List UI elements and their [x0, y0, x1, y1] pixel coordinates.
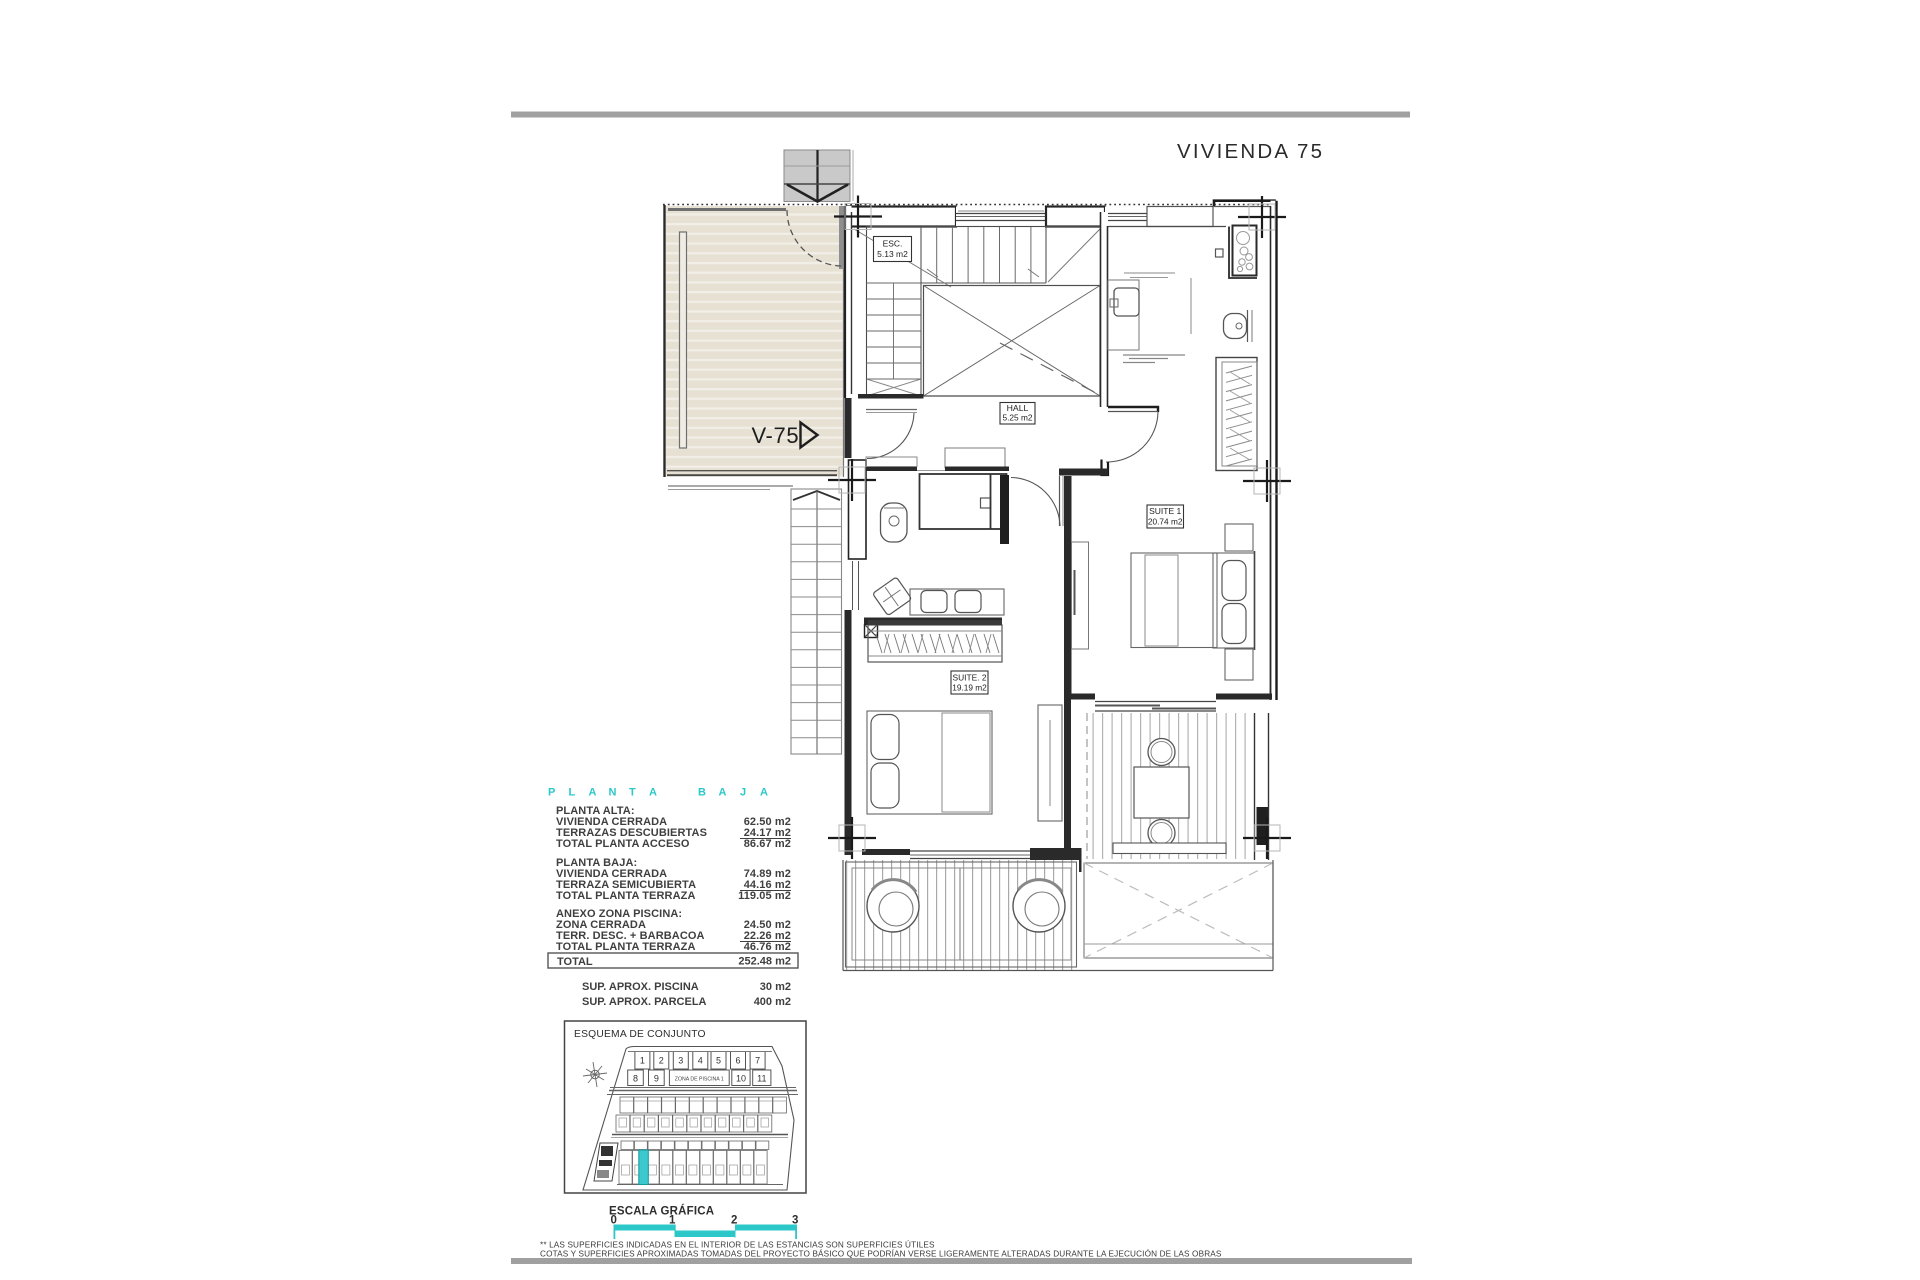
- svg-text:A: A: [589, 787, 597, 799]
- svg-text:TOTAL: TOTAL: [557, 956, 593, 968]
- svg-text:ESQUEMA DE CONJUNTO: ESQUEMA DE CONJUNTO: [574, 1029, 706, 1040]
- svg-text:1: 1: [640, 1056, 645, 1066]
- svg-text:TOTAL PLANTA ACCESO: TOTAL PLANTA ACCESO: [556, 838, 690, 850]
- svg-text:20.74 m2: 20.74 m2: [1148, 517, 1183, 527]
- svg-text:A: A: [760, 787, 768, 799]
- svg-text:SUP. APROX. PISCINA: SUP. APROX. PISCINA: [582, 981, 699, 993]
- svg-text:252.48 m2: 252.48 m2: [738, 956, 791, 968]
- svg-text:L: L: [569, 787, 576, 799]
- svg-text:30 m2: 30 m2: [760, 981, 791, 993]
- svg-text:T: T: [629, 787, 636, 799]
- svg-text:VIVIENDA 75: VIVIENDA 75: [1177, 140, 1324, 163]
- svg-text:P: P: [548, 787, 555, 799]
- svg-text:6: 6: [735, 1056, 740, 1066]
- svg-text:** LAS SUPERFICIES INDICADAS E: ** LAS SUPERFICIES INDICADAS EN EL INTER…: [540, 1240, 935, 1250]
- svg-text:5: 5: [716, 1056, 721, 1066]
- svg-text:TOTAL PLANTA TERRAZA: TOTAL PLANTA TERRAZA: [556, 890, 696, 902]
- svg-text:11: 11: [757, 1074, 766, 1084]
- svg-text:9: 9: [654, 1074, 659, 1084]
- svg-text:400 m2: 400 m2: [754, 996, 791, 1008]
- svg-text:5.13 m2: 5.13 m2: [877, 249, 908, 259]
- svg-text:V-75: V-75: [752, 423, 800, 448]
- svg-text:A: A: [649, 787, 657, 799]
- svg-text:J: J: [740, 787, 746, 799]
- svg-text:B: B: [698, 787, 706, 799]
- svg-text:SUITE 1: SUITE 1: [1149, 506, 1181, 516]
- svg-text:4: 4: [698, 1056, 703, 1066]
- svg-text:COTAS Y SUPERFICIES APROXIMADA: COTAS Y SUPERFICIES APROXIMADAS TOMADAS …: [540, 1249, 1222, 1259]
- svg-text:46.76 m2: 46.76 m2: [744, 941, 791, 953]
- svg-text:SUITE. 2: SUITE. 2: [953, 673, 987, 683]
- svg-text:SUP. APROX. PARCELA: SUP. APROX. PARCELA: [582, 996, 707, 1008]
- svg-text:8: 8: [633, 1074, 638, 1084]
- svg-text:119.05 m2: 119.05 m2: [738, 890, 791, 902]
- svg-text:A: A: [719, 787, 727, 799]
- svg-text:19.19 m2: 19.19 m2: [952, 683, 987, 693]
- svg-text:N: N: [609, 787, 617, 799]
- svg-text:7: 7: [755, 1056, 760, 1066]
- svg-text:3: 3: [678, 1056, 683, 1066]
- svg-text:ESC.: ESC.: [883, 239, 903, 249]
- svg-text:ESCALA GRÁFICA: ESCALA GRÁFICA: [609, 1205, 714, 1218]
- svg-text:2: 2: [659, 1056, 664, 1066]
- svg-text:10: 10: [736, 1074, 746, 1084]
- svg-text:HALL: HALL: [1007, 403, 1029, 413]
- svg-text:TOTAL PLANTA TERRAZA: TOTAL PLANTA TERRAZA: [556, 941, 696, 953]
- svg-text:86.67 m2: 86.67 m2: [744, 838, 791, 850]
- svg-text:5.25 m2: 5.25 m2: [1003, 413, 1033, 423]
- svg-text:ZONA DE PISCINA 1: ZONA DE PISCINA 1: [675, 1077, 724, 1083]
